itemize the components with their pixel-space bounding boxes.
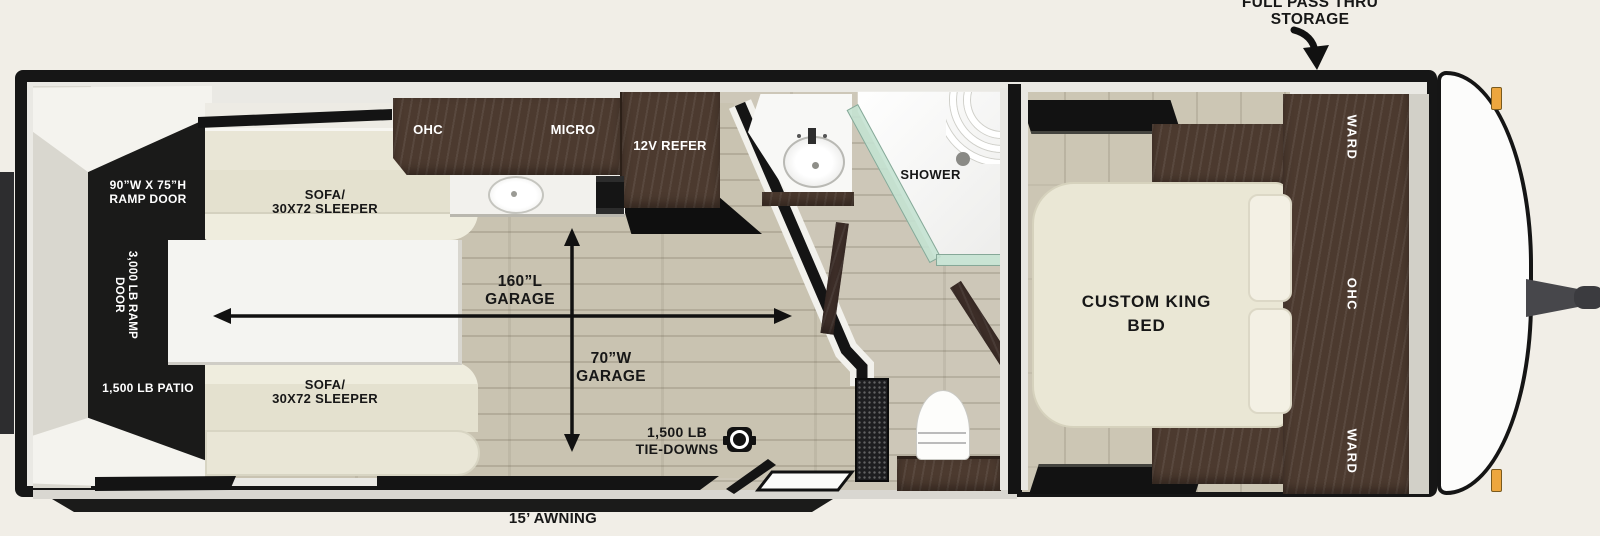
hitch-coupler [1574,286,1600,309]
ward-front-label: WARD [1345,103,1360,173]
garage-width-label: 70”W GARAGE [546,350,676,386]
ohc-label: OHC [398,122,458,137]
pass-thru-line2: STORAGE [1215,12,1405,29]
refer-label: 12V REFER [625,138,715,153]
garage-window-bottom-left [95,476,236,491]
sofa-bottom-label: SOFA/ 30X72 SLEEPER [225,378,425,405]
garage-window-top [198,109,392,128]
tie-downs-label: 1,500 LB TIE-DOWNS [618,424,736,457]
entry-threshold [758,472,852,490]
shower-label: SHOWER [893,167,968,182]
awning-rail [52,499,833,512]
garage-length-label: 160”L GARAGE [455,273,585,309]
sofa-top-label: SOFA/ 30X72 SLEEPER [225,188,425,215]
pass-thru-line1: FULL PASS THRU [1215,0,1405,12]
ramp-rating-label: 3,000 LB RAMP DOOR [112,230,138,360]
garage-window-bottom-right [377,476,719,490]
micro-label: MICRO [533,122,613,137]
ward-rear-label: WARD [1345,417,1360,487]
hitch-tongue [1526,279,1578,317]
bedroom-ohc-label: OHC [1345,260,1360,330]
ramp-door-size-label: 90”W X 75”H RAMP DOOR [88,179,208,206]
overlay-shapes [0,0,1600,536]
king-bed-label: CUSTOM KING BED [1054,290,1239,338]
patio-rating-label: 1,500 LB PATIO [88,381,208,395]
awning-label: 15’ AWNING [478,510,628,527]
floorplan-canvas: FULL PASS THRU STORAGE 90”W X 75”H RAMP … [0,0,1600,536]
pass-thru-storage-label: FULL PASS THRU STORAGE [1215,0,1405,28]
